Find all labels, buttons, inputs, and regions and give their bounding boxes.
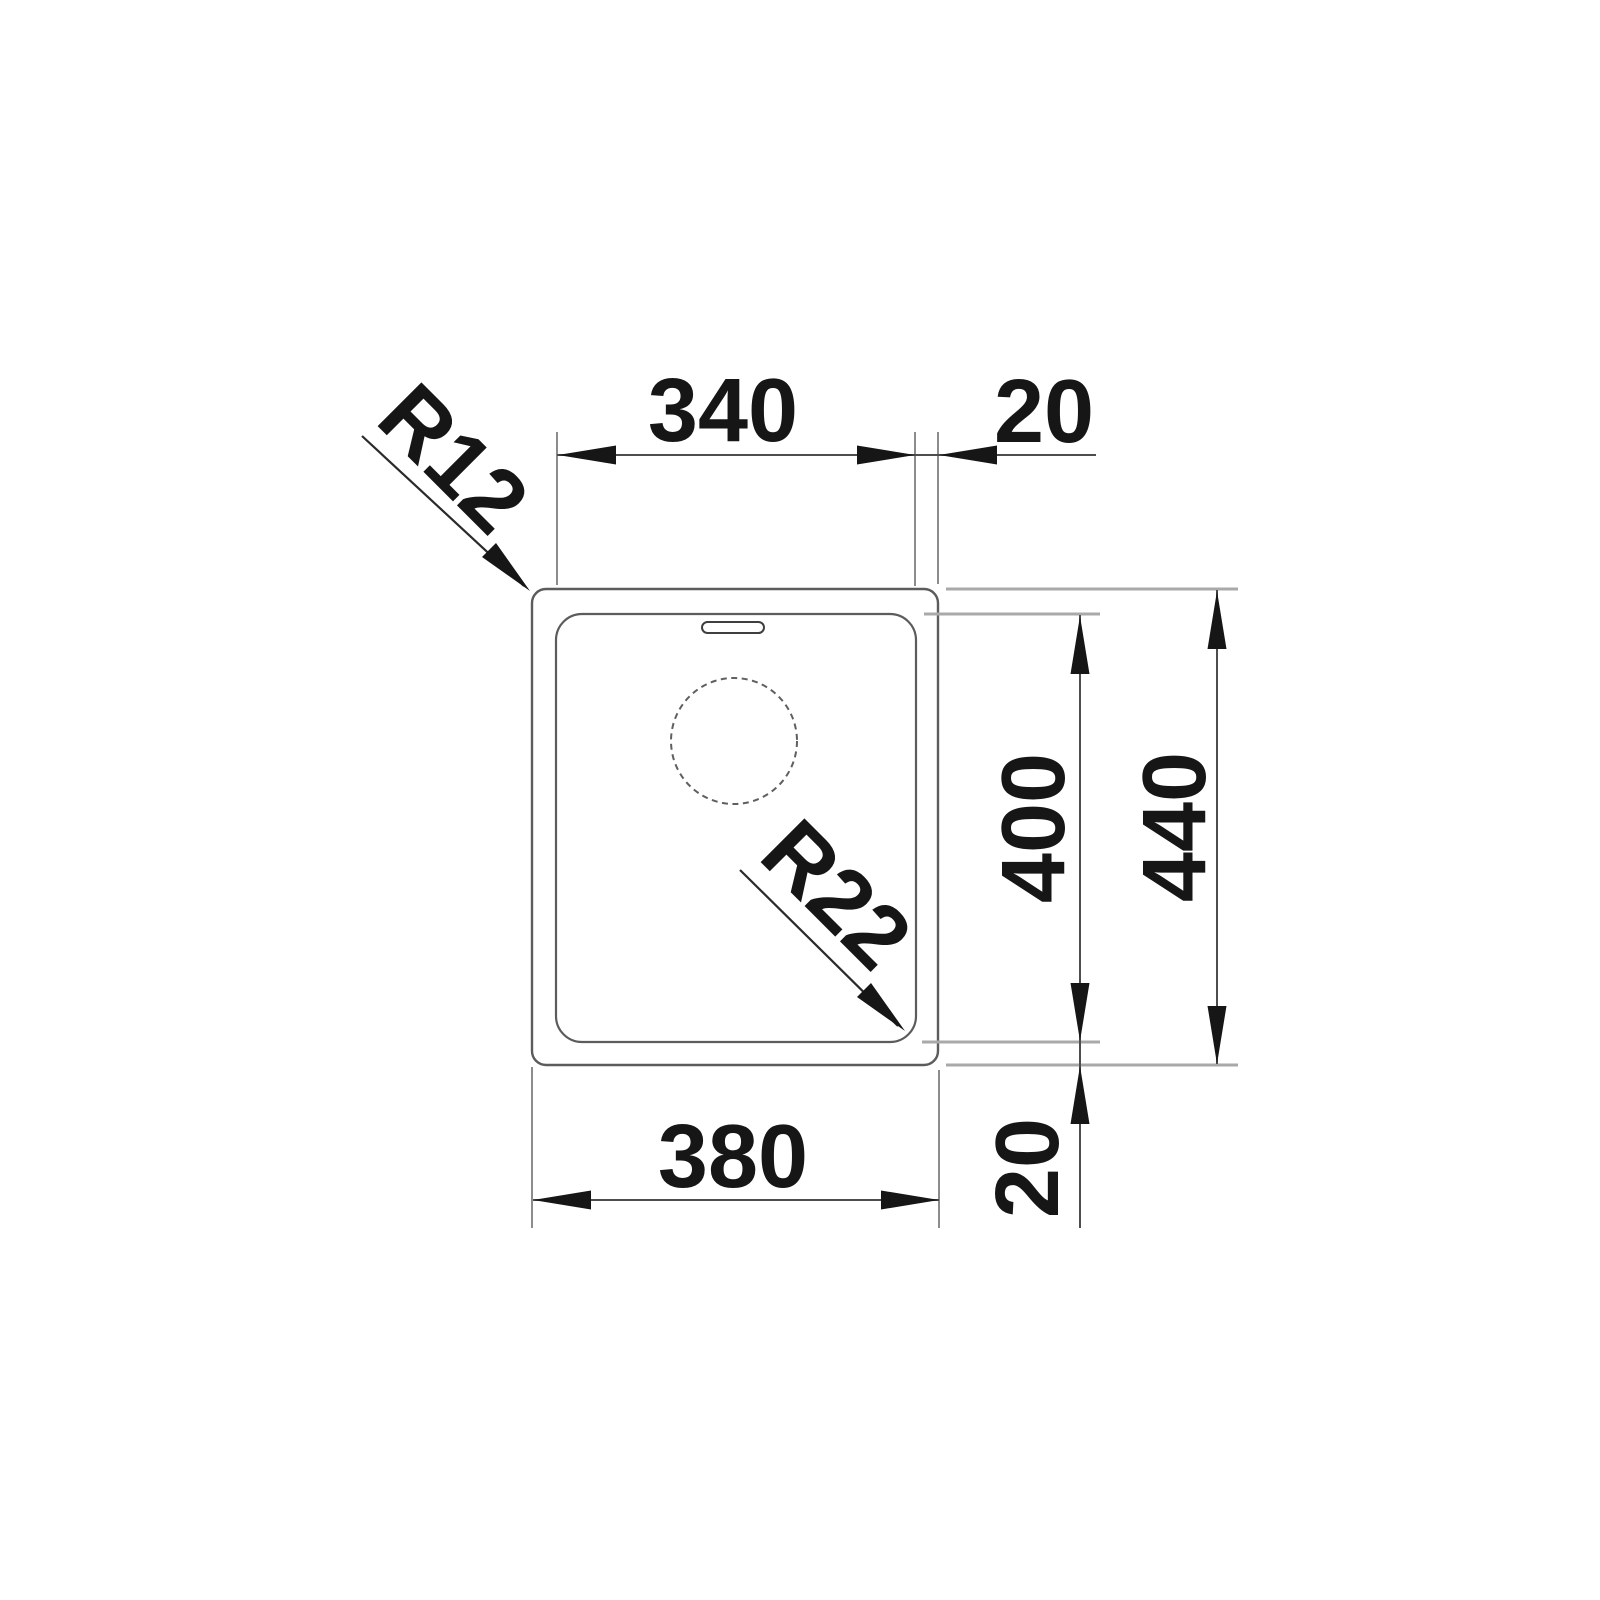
dim-label-inner-width: 340 — [648, 361, 798, 461]
technical-drawing-page: 340 20 400 20 440 380 R12 R22 — [0, 0, 1600, 1600]
canvas-background — [0, 0, 1600, 1600]
dim-label-outer-width: 380 — [658, 1107, 808, 1207]
dim-label-outer-depth: 440 — [1125, 752, 1225, 902]
sink-dimension-drawing: 340 20 400 20 440 380 R12 R22 — [0, 0, 1600, 1600]
dim-label-rim-bottom: 20 — [978, 1118, 1078, 1218]
overflow-slot — [702, 622, 764, 633]
dim-label-inner-depth: 400 — [984, 753, 1084, 903]
dim-label-rim-top: 20 — [994, 362, 1094, 462]
